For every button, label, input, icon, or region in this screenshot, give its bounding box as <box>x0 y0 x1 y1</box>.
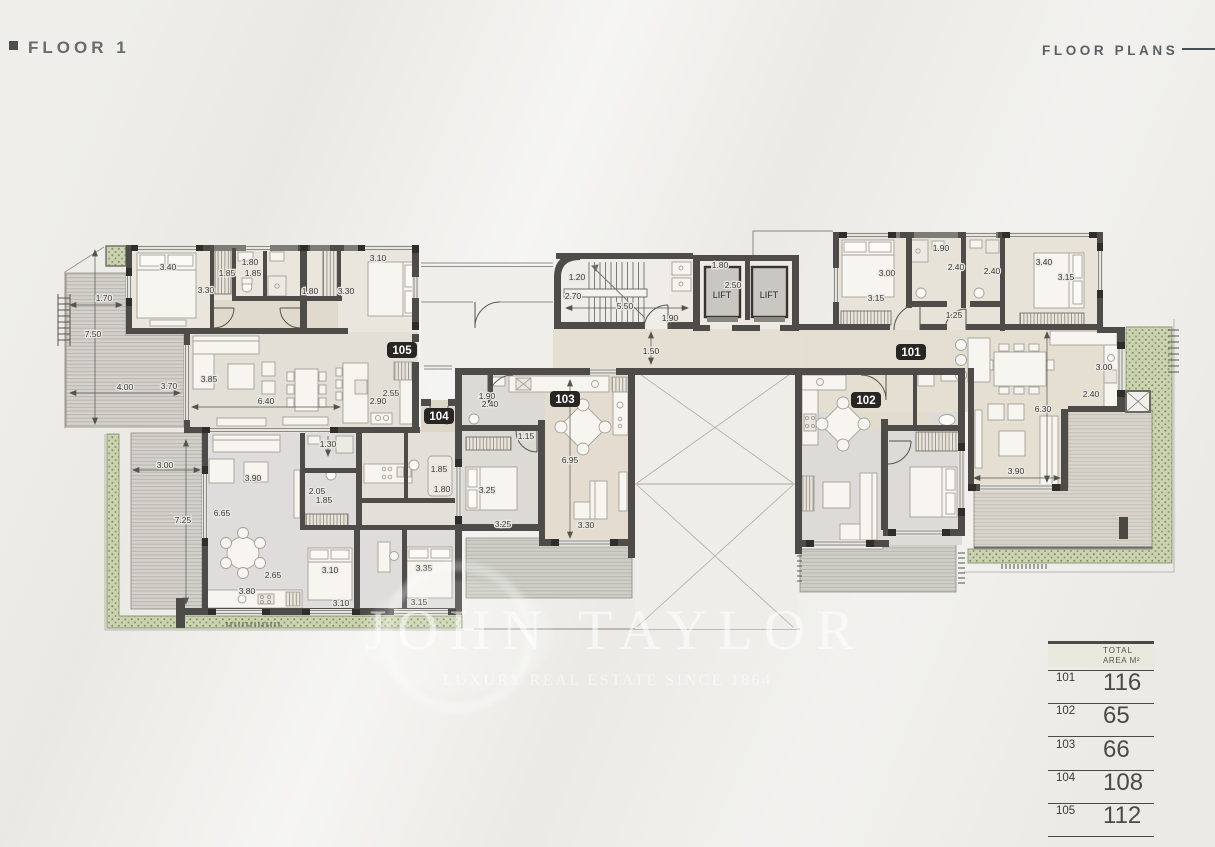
svg-text:2.70: 2.70 <box>565 291 582 301</box>
svg-text:6.65: 6.65 <box>214 508 231 518</box>
svg-text:1.25: 1.25 <box>946 310 963 320</box>
svg-text:3.00: 3.00 <box>1096 362 1113 372</box>
svg-text:3.90: 3.90 <box>245 473 262 483</box>
svg-text:3.25: 3.25 <box>495 519 512 529</box>
svg-text:104: 104 <box>429 411 449 423</box>
svg-text:1.50: 1.50 <box>643 346 660 356</box>
svg-text:7.25: 7.25 <box>175 515 192 525</box>
svg-text:101: 101 <box>901 347 921 359</box>
svg-text:3.00: 3.00 <box>157 460 174 470</box>
svg-text:2.40: 2.40 <box>482 399 499 409</box>
svg-text:1.85: 1.85 <box>219 268 236 278</box>
svg-text:1.85: 1.85 <box>245 268 262 278</box>
svg-text:3.90: 3.90 <box>1008 466 1025 476</box>
svg-text:3.15: 3.15 <box>868 293 885 303</box>
svg-text:2.55: 2.55 <box>383 388 400 398</box>
svg-text:LIFT: LIFT <box>713 290 732 300</box>
svg-text:103: 103 <box>555 394 574 406</box>
svg-text:2.40: 2.40 <box>984 266 1001 276</box>
svg-text:1.85: 1.85 <box>316 495 333 505</box>
svg-text:1.80: 1.80 <box>712 260 729 270</box>
svg-text:1.20: 1.20 <box>569 272 586 282</box>
svg-text:2.50: 2.50 <box>725 280 742 290</box>
svg-text:3.85: 3.85 <box>201 374 218 384</box>
svg-text:3.15: 3.15 <box>1058 272 1075 282</box>
svg-text:7.50: 7.50 <box>85 329 102 339</box>
svg-text:4.00: 4.00 <box>117 382 134 392</box>
svg-text:3.30: 3.30 <box>578 520 595 530</box>
svg-text:6.95: 6.95 <box>562 455 579 465</box>
svg-text:1.80: 1.80 <box>302 286 319 296</box>
svg-text:3.00: 3.00 <box>879 268 896 278</box>
svg-text:3.30: 3.30 <box>338 286 355 296</box>
svg-text:1.70: 1.70 <box>96 293 113 303</box>
svg-text:1.30: 1.30 <box>320 439 337 449</box>
svg-text:3.10: 3.10 <box>333 598 350 608</box>
svg-text:3.40: 3.40 <box>160 262 177 272</box>
svg-text:3.30: 3.30 <box>198 285 215 295</box>
svg-text:LIFT: LIFT <box>760 290 779 300</box>
svg-text:1.80: 1.80 <box>434 484 451 494</box>
svg-text:105: 105 <box>392 345 412 357</box>
svg-text:3.40: 3.40 <box>1036 257 1053 267</box>
svg-text:3.25: 3.25 <box>479 485 496 495</box>
svg-text:3.70: 3.70 <box>161 381 178 391</box>
svg-text:3.10: 3.10 <box>322 565 339 575</box>
svg-text:1.90: 1.90 <box>662 313 679 323</box>
svg-text:3.80: 3.80 <box>239 586 256 596</box>
svg-text:1.80: 1.80 <box>242 257 259 267</box>
svg-text:3.10: 3.10 <box>370 253 387 263</box>
svg-text:102: 102 <box>856 395 875 407</box>
svg-text:2.65: 2.65 <box>265 570 282 580</box>
svg-text:1.85: 1.85 <box>431 464 448 474</box>
svg-text:6.30: 6.30 <box>1035 404 1052 414</box>
svg-text:3.35: 3.35 <box>416 563 433 573</box>
svg-text:5.50: 5.50 <box>617 301 634 311</box>
svg-text:2.40: 2.40 <box>1083 389 1100 399</box>
svg-text:1.15: 1.15 <box>518 431 535 441</box>
svg-text:2.40: 2.40 <box>948 262 965 272</box>
svg-text:1.90: 1.90 <box>933 243 950 253</box>
svg-text:6.40: 6.40 <box>258 396 275 406</box>
